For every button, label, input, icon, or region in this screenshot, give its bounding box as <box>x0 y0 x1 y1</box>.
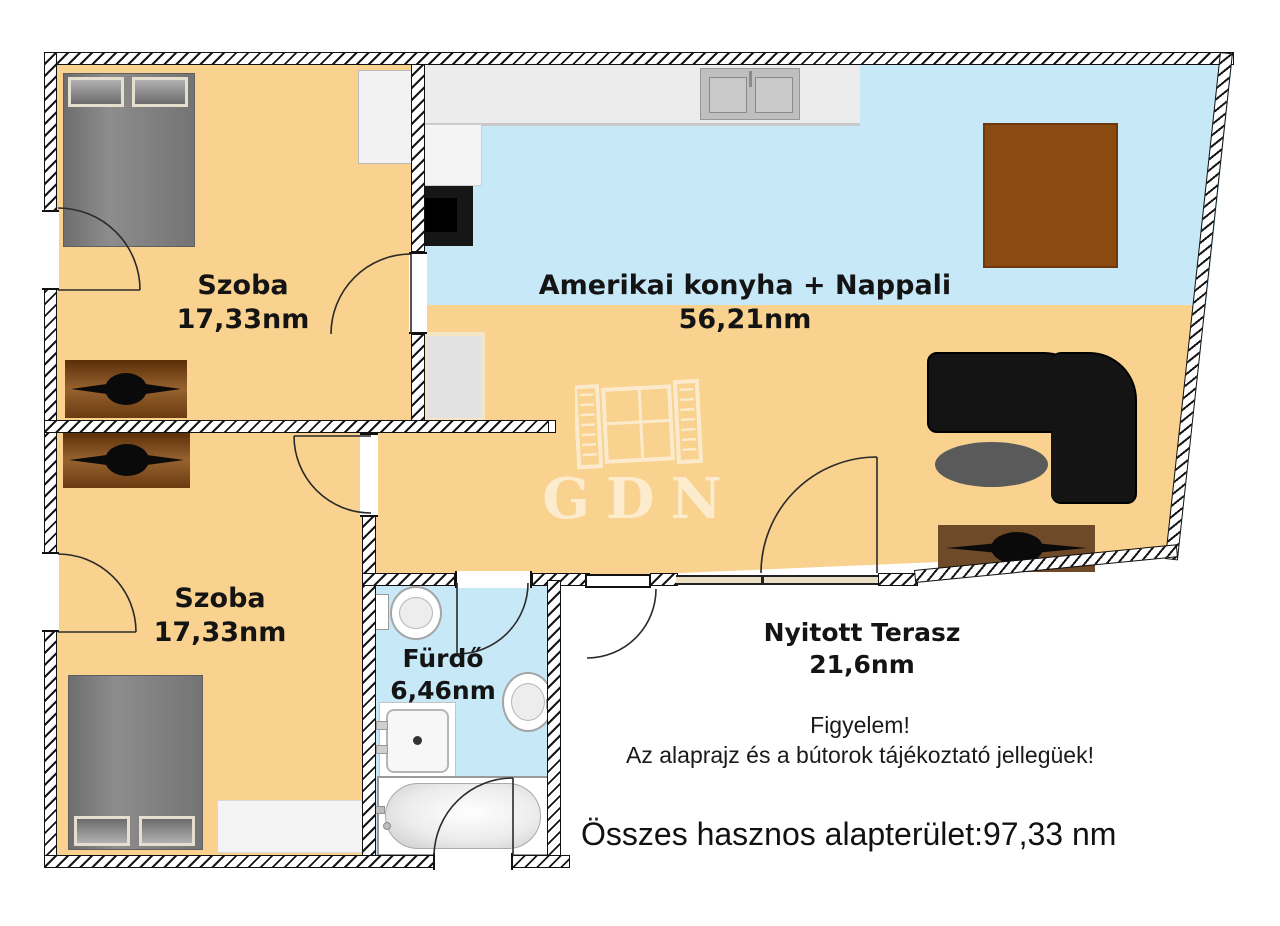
wall-bath-north-2 <box>532 573 590 586</box>
toilet-tank <box>375 594 389 630</box>
label-terrace: Nyitott Terasz 21,6nm <box>712 617 1012 681</box>
appliance-door <box>423 198 457 232</box>
bedroom1-name: Szoba <box>118 269 368 303</box>
wall-bedroom1-kitchen-lower <box>411 334 425 422</box>
disclaimer-note: Figyelem! Az alaprajz és a bútorok tájék… <box>560 710 1160 770</box>
wall-bathroom-east <box>547 580 561 856</box>
total-area-text: Összes hasznos alapterület:97,33 nm <box>581 816 1116 853</box>
bedroom2-name: Szoba <box>95 582 345 616</box>
kitchen-cabinet <box>420 124 482 186</box>
double-bed-1 <box>63 73 195 247</box>
label-bedroom2: Szoba 17,33nm <box>95 582 345 650</box>
tv-stand-bedroom2 <box>63 432 190 488</box>
tub-knob <box>383 822 391 830</box>
door-opening-bedroom2 <box>360 433 378 517</box>
bathroom-name: Fürdő <box>360 643 526 675</box>
wall-outer-left <box>44 52 57 868</box>
double-bed-2 <box>68 675 203 850</box>
terrace-sliding-threshold <box>676 575 878 585</box>
rug-bedroom2 <box>217 800 367 853</box>
toilet <box>390 586 442 640</box>
shower-knob <box>376 745 388 754</box>
label-living: Amerikai konyha + Nappali 56,21nm <box>515 269 975 337</box>
label-bathroom: Fürdő 6,46nm <box>360 643 526 707</box>
sink-basin <box>709 77 747 113</box>
shower-drain <box>413 736 422 745</box>
wall-bedroom1-kitchen-upper <box>411 64 425 252</box>
terrace-name: Nyitott Terasz <box>712 617 1012 649</box>
pillow <box>74 816 130 846</box>
terrace-area: 21,6nm <box>712 649 1012 681</box>
door-opening-bathroom <box>455 571 532 588</box>
bedroom2-area: 17,33nm <box>95 616 345 650</box>
pillow <box>139 816 195 846</box>
gdn-watermark-text: GDN <box>540 474 740 524</box>
door-opening-bathroom-south <box>433 853 513 870</box>
pillow <box>132 77 188 107</box>
bathtub <box>377 776 549 856</box>
toilet-bowl <box>399 597 433 629</box>
wall-outer-top <box>44 52 1234 65</box>
faucet <box>749 71 752 87</box>
living-area: 56,21nm <box>515 303 975 337</box>
door-opening-bedroom1 <box>409 252 427 334</box>
terrace-door-leaf <box>585 574 651 588</box>
disclaimer-title: Figyelem! <box>560 710 1160 740</box>
bathroom-area: 6,46nm <box>360 675 526 707</box>
bedroom1-area: 17,33nm <box>118 303 368 337</box>
dining-table <box>983 123 1118 268</box>
bathtub-basin <box>385 783 541 849</box>
sink-basin <box>755 77 793 113</box>
gdn-watermark: GDN <box>540 378 740 524</box>
disclaimer-body: Az alaprajz és a bútorok tájékoztató jel… <box>560 740 1160 770</box>
label-bedroom1: Szoba 17,33nm <box>118 269 368 337</box>
hall-cabinet <box>423 332 485 422</box>
wardrobe-bedroom1 <box>358 70 414 164</box>
kitchen-appliance <box>419 186 473 246</box>
tv-stand-bedroom1 <box>65 360 187 418</box>
shower-knob <box>376 721 388 730</box>
pillow <box>68 77 124 107</box>
coffee-table <box>935 442 1048 487</box>
living-name: Amerikai konyha + Nappali <box>515 269 975 303</box>
wall-bath-north-1 <box>362 573 455 586</box>
corner-sofa <box>1051 352 1137 504</box>
door-arc-terrace <box>587 589 656 658</box>
wall-living-south-1 <box>650 573 678 586</box>
shower-tray <box>379 702 456 780</box>
kitchen-sink <box>700 68 800 120</box>
window-opening-bedroom2 <box>42 552 59 632</box>
threshold-divider <box>761 575 764 585</box>
gdn-window-icon <box>575 378 705 470</box>
wall-bedroom1-south <box>44 420 554 433</box>
window-opening-bedroom1 <box>42 210 59 290</box>
floor-plan: GDN Szoba 17,33nm Szoba 17,33nm Amerikai… <box>0 0 1280 926</box>
wall-living-south-2 <box>878 573 918 586</box>
